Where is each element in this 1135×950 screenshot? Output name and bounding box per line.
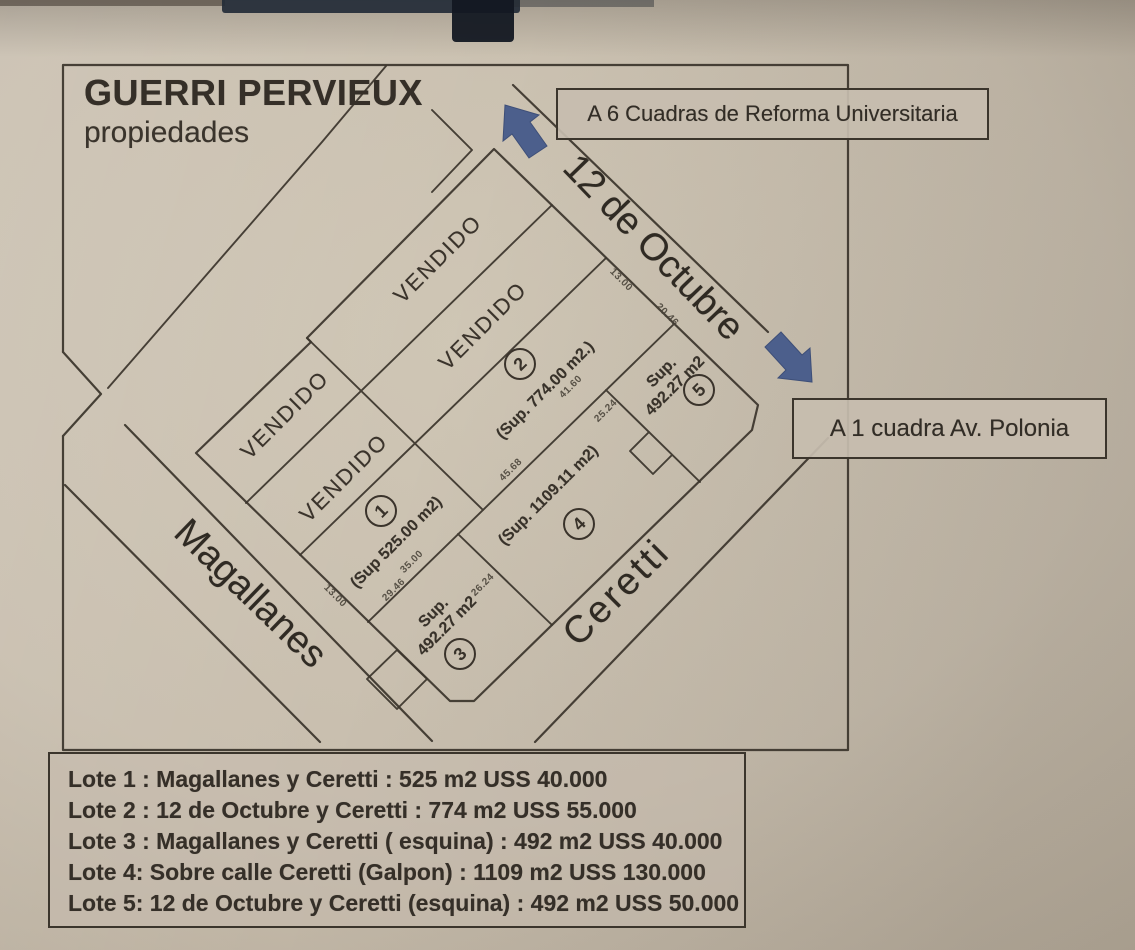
lot-1-number: 1	[370, 500, 392, 522]
direction-box-reforma-universitaria: A 6 Cuadras de Reforma Universitaria	[556, 88, 989, 140]
price-line-lote-4: Lote 4: Sobre calle Ceretti (Galpon) : 1…	[68, 857, 744, 888]
price-line-lote-3: Lote 3 : Magallanes y Ceretti ( esquina)…	[68, 826, 744, 857]
brand-block: GUERRI PERVIEUX propiedades	[84, 72, 423, 150]
lot-4-number: 4	[568, 513, 590, 535]
price-list-box: Lote 1 : Magallanes y Ceretti : 525 m2 U…	[48, 752, 746, 928]
arrow-down-right-icon	[765, 332, 812, 382]
price-line-lote-1: Lote 1 : Magallanes y Ceretti : 525 m2 U…	[68, 764, 744, 795]
brand-subtitle: propiedades	[84, 116, 423, 150]
brand-title: GUERRI PERVIEUX	[84, 72, 423, 114]
photo-background: GUERRI PERVIEUX propiedades A 6 Cuadras …	[0, 0, 1135, 950]
lot-5-number: 5	[688, 379, 710, 401]
lot-2-number: 2	[509, 353, 531, 375]
direction-box-reforma-label: A 6 Cuadras de Reforma Universitaria	[587, 101, 958, 127]
price-line-lote-5: Lote 5: 12 de Octubre y Ceretti (esquina…	[68, 888, 744, 919]
direction-box-av-polonia: A 1 cuadra Av. Polonia	[792, 398, 1107, 459]
direction-box-polonia-label: A 1 cuadra Av. Polonia	[830, 415, 1069, 443]
lot-3-number: 3	[449, 643, 471, 665]
price-line-lote-2: Lote 2 : 12 de Octubre y Ceretti : 774 m…	[68, 795, 744, 826]
